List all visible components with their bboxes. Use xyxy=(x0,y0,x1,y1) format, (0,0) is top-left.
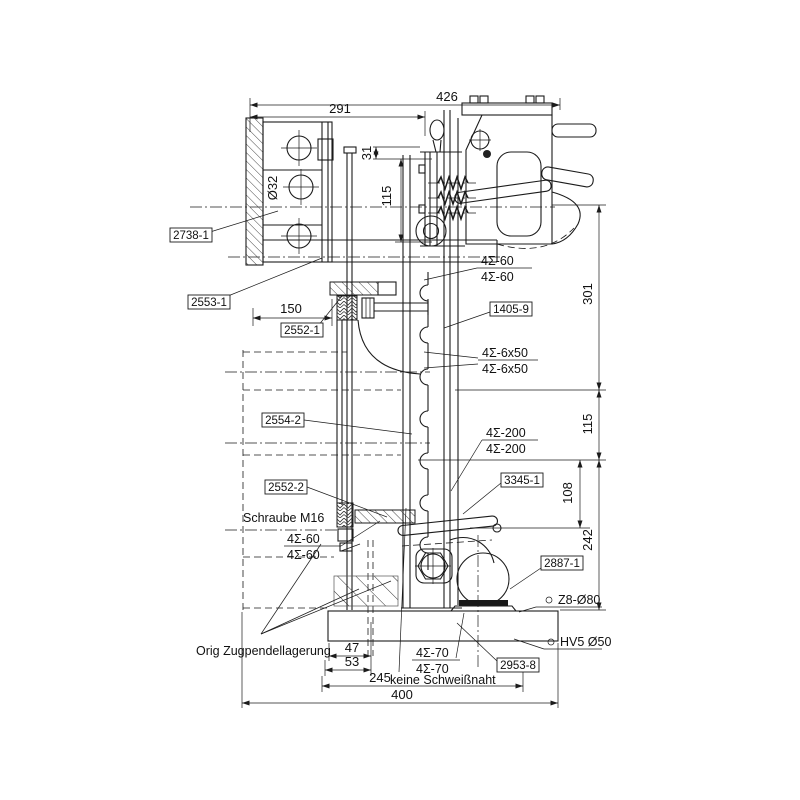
pin-dot xyxy=(483,150,491,158)
dimension-head: 31 115 xyxy=(359,146,432,242)
hidden-reference-outline xyxy=(243,350,401,656)
technical-drawing: Ø32 xyxy=(0,0,800,800)
weld-note-60-top: 4Σ-60 4Σ-60 xyxy=(424,254,532,284)
weld-note-60-bottom: 4Σ-60 4Σ-60 xyxy=(284,521,380,562)
clamp-claw xyxy=(397,516,501,584)
weld-note-z8: Z8-Ø80 xyxy=(519,593,602,612)
dim-400: 400 xyxy=(391,687,413,702)
weld-text: 4Σ-60 xyxy=(481,270,514,284)
dim-31: 31 xyxy=(359,146,374,160)
dim-426: 426 xyxy=(436,89,458,104)
part-label-3345-1: 3345-1 xyxy=(463,473,543,514)
weld-text: 4Σ-6x50 xyxy=(482,362,528,376)
weld-text: 4Σ-200 xyxy=(486,426,526,440)
weld-note-6x50: 4Σ-6x50 4Σ-6x50 xyxy=(424,346,538,376)
part-label-2553-1: 2553-1 xyxy=(188,258,322,309)
release-lever-ring xyxy=(430,120,444,140)
upper-clamp xyxy=(330,282,428,374)
dim-301: 301 xyxy=(580,283,595,305)
tow-ball xyxy=(451,553,516,611)
part-number: 2553-1 xyxy=(191,297,227,309)
part-label-2953-8: 2953-8 xyxy=(457,623,539,672)
ball-collar xyxy=(459,600,508,606)
part-number: 2953-8 xyxy=(500,660,536,672)
eye-ring xyxy=(416,216,446,246)
handle-bar-lower xyxy=(541,166,594,188)
part-number: 2887-1 xyxy=(544,558,580,570)
dimension-top: 426 291 xyxy=(250,89,560,136)
dim-150: 150 xyxy=(280,301,302,316)
note-text: Schraube M16 xyxy=(243,511,324,525)
part-number: 2552-2 xyxy=(268,482,304,494)
note-schraube-m16: Schraube M16 xyxy=(243,511,324,525)
weld-note-hv5: HV5 Ø50 xyxy=(514,635,611,649)
dim-291: 291 xyxy=(329,101,351,116)
hole-diameter-label: Ø32 xyxy=(265,176,280,201)
main-rail xyxy=(401,110,462,608)
weld-text: Z8-Ø80 xyxy=(558,593,600,607)
dim-115-right: 115 xyxy=(580,414,595,435)
dim-47: 47 xyxy=(345,640,359,655)
dim-242: 242 xyxy=(580,529,595,551)
part-label-1405-9: 1405-9 xyxy=(444,302,532,328)
part-label-2887-1: 2887-1 xyxy=(510,556,583,589)
jaw-horn xyxy=(552,192,580,244)
spring-pack xyxy=(416,120,476,246)
weld-text: 4Σ-70 xyxy=(416,646,449,660)
part-number: 2554-2 xyxy=(265,415,301,427)
dimension-150: 150 xyxy=(253,299,332,326)
coupling-head xyxy=(454,96,596,248)
dim-53: 53 xyxy=(345,654,359,669)
dim-245: 245 xyxy=(369,670,391,685)
weld-text: HV5 Ø50 xyxy=(560,635,611,649)
wall-plate xyxy=(246,118,263,265)
note-text: keine Schweißnaht xyxy=(390,673,496,687)
weld-text: 4Σ-6x50 xyxy=(482,346,528,360)
rack-teeth xyxy=(420,272,428,570)
weld-note-70: 4Σ-70 4Σ-70 xyxy=(412,613,464,676)
weld-text: 4Σ-60 xyxy=(287,548,320,562)
note-text: Orig Zugpendellagerung xyxy=(196,644,331,658)
mounting-bracket: Ø32 xyxy=(263,122,333,262)
handle-bar-upper xyxy=(552,124,596,137)
dim-108: 108 xyxy=(560,482,575,504)
drawing-sheet: Ø32 xyxy=(0,0,800,800)
weld-text: 4Σ-200 xyxy=(486,442,526,456)
part-number: 3345-1 xyxy=(504,475,540,487)
lower-mounting-plate xyxy=(263,240,497,262)
base-plate xyxy=(328,611,558,641)
part-number: 1405-9 xyxy=(493,304,529,316)
part-number: 2738-1 xyxy=(173,230,209,242)
dim-115-head: 115 xyxy=(379,186,394,207)
part-number: 2552-1 xyxy=(284,325,320,337)
weld-text: 4Σ-60 xyxy=(481,254,514,268)
weld-text: 4Σ-60 xyxy=(287,532,320,546)
